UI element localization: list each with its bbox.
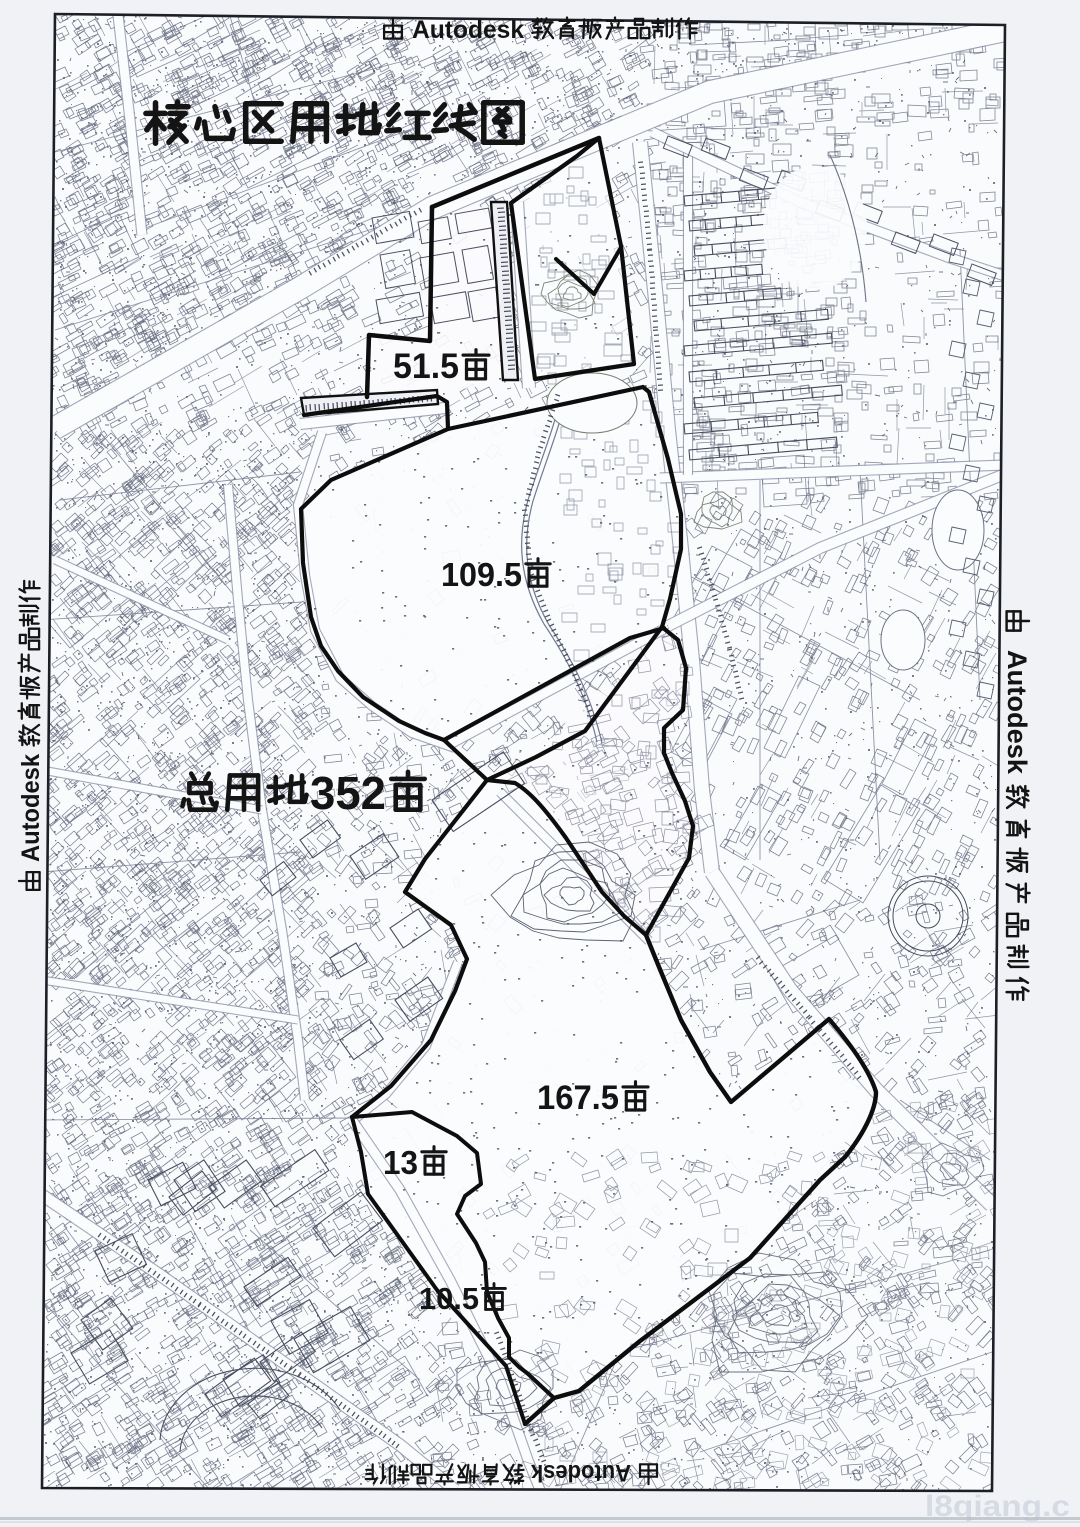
svg-text:10.5: 10.5 <box>419 1281 479 1316</box>
svg-text:109.5: 109.5 <box>441 556 522 593</box>
svg-text:352: 352 <box>310 767 386 819</box>
svg-text:167.5: 167.5 <box>537 1079 619 1117</box>
svg-text:Autodesk: Autodesk <box>530 1459 631 1486</box>
svg-text:Autodesk: Autodesk <box>412 16 524 44</box>
svg-text:13: 13 <box>383 1144 418 1181</box>
svg-text:Autodesk: Autodesk <box>17 754 45 862</box>
svg-text:51.5: 51.5 <box>393 347 459 386</box>
svg-text:Autodesk: Autodesk <box>1002 650 1032 775</box>
